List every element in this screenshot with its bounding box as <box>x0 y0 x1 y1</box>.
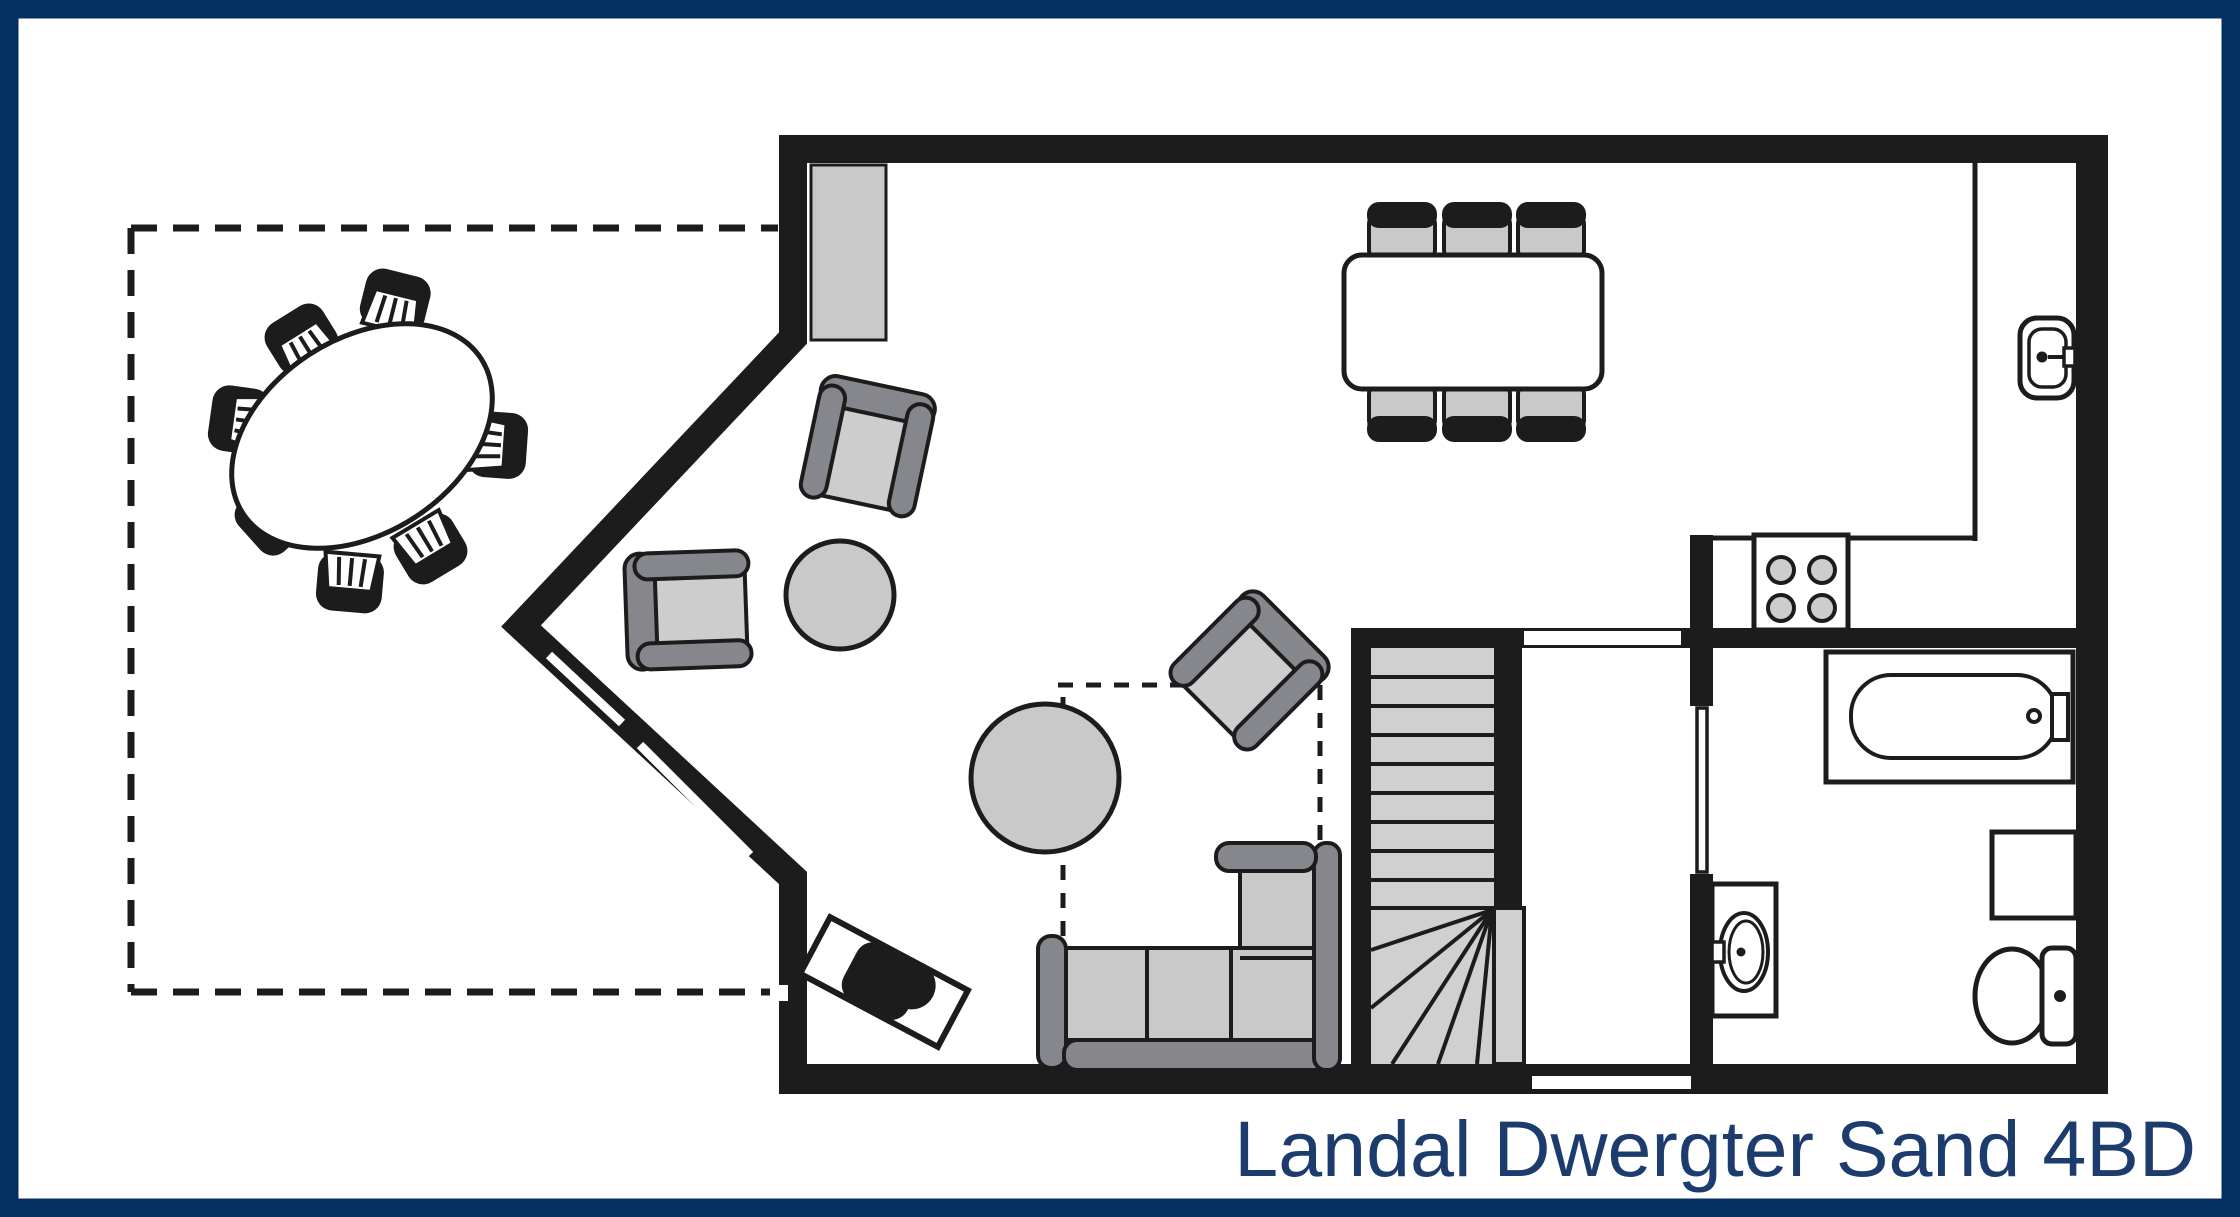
dining-table <box>1344 255 1602 389</box>
washbasin <box>1712 884 1776 1016</box>
sofa-backrest-bottom <box>1064 1040 1340 1070</box>
dining-chair <box>1442 384 1512 442</box>
door-opening-hall-top <box>1524 631 1681 645</box>
bathroom-door-leaf <box>1697 708 1707 872</box>
kitchen-sink <box>2020 318 2075 398</box>
bathtub-faucet-icon <box>2052 694 2068 740</box>
sofa-arm-left <box>1038 936 1066 1068</box>
dining-set <box>1344 202 1602 442</box>
bathtub-drain-icon <box>2028 710 2040 722</box>
side-table-round <box>786 541 894 649</box>
burner-icon <box>1809 595 1835 621</box>
basin-tap-icon <box>1712 942 1724 962</box>
sofa-backrest-right <box>1314 843 1340 1070</box>
dining-chair <box>1367 202 1437 260</box>
toilet-flush-icon <box>2054 990 2066 1002</box>
plan-title: Landal Dwergter Sand 4BD <box>1234 1104 2196 1193</box>
chimney-block <box>811 165 886 340</box>
burner-icon <box>1768 595 1794 621</box>
burner-icon <box>1768 557 1794 583</box>
wall-stairs-right <box>1494 648 1522 908</box>
wall-kitchen-stub <box>1690 535 1713 628</box>
sink-drain-icon <box>2037 352 2048 363</box>
bathtub <box>1826 652 2073 782</box>
wall-bottom <box>779 1064 2108 1094</box>
floorplan-page: Landal Dwergter Sand 4BD <box>0 0 2240 1217</box>
floorplan-canvas: Landal Dwergter Sand 4BD <box>0 0 2240 1217</box>
burner-icon <box>1809 557 1835 583</box>
wall-hall-top <box>1351 628 2076 648</box>
dining-chair <box>1367 384 1437 442</box>
wall-right <box>2076 135 2108 1094</box>
sofa-arm-top <box>1216 843 1316 871</box>
armchair <box>798 373 937 518</box>
toilet <box>1975 948 2076 1044</box>
round-rug <box>971 704 1119 852</box>
terrace-chair <box>315 551 386 615</box>
dining-chair <box>1442 202 1512 260</box>
wall-bathroom-upper <box>1690 648 1713 706</box>
basin-drain-icon <box>1737 948 1746 957</box>
armchair <box>624 550 752 670</box>
wall-stairs-left <box>1351 648 1371 1064</box>
entry-door-opening <box>1532 1076 1691 1089</box>
wall-top <box>781 135 2108 163</box>
window-slit-small <box>779 985 788 1001</box>
dining-chair <box>1516 384 1586 442</box>
dining-chair <box>1516 202 1586 260</box>
stair-landing <box>1494 908 1524 1064</box>
shower-unit <box>1992 832 2076 918</box>
